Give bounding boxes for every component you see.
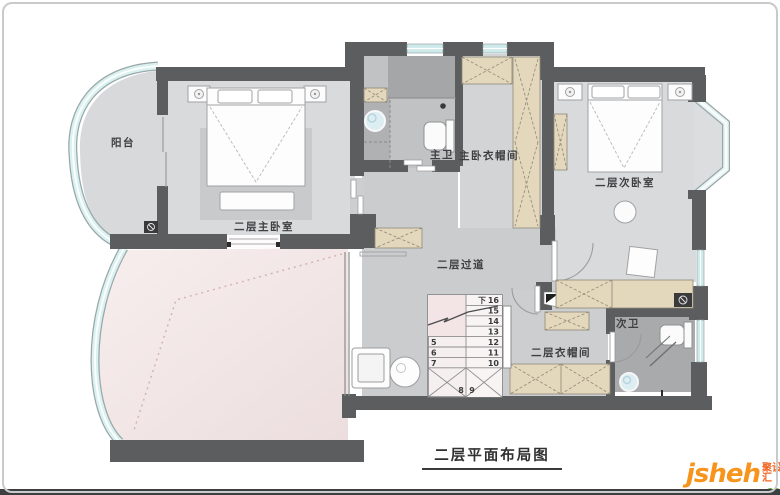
bedroom-table xyxy=(626,246,657,277)
upper-closet-small-cabinet xyxy=(545,312,589,330)
master-bath-cabinet xyxy=(364,88,387,102)
stair-step: 16 xyxy=(488,296,500,305)
floor-plan-page: 下 16 15 14 13 12 11 10 5 6 7 8 9 阳台 二层主卧… xyxy=(0,0,780,495)
master-bath-label: 主卫 xyxy=(430,148,454,161)
master-closet-tall-wardrobe xyxy=(513,57,540,228)
balcony-label: 阳台 xyxy=(111,136,135,149)
stair-step: 12 xyxy=(488,338,499,347)
floor-drain xyxy=(440,103,446,109)
stair-handrail xyxy=(503,306,511,368)
stair-step: 6 xyxy=(431,349,437,358)
stair-step: 9 xyxy=(469,386,475,395)
upper-closet-label: 二层衣帽间 xyxy=(531,346,591,359)
second-bath-label: 次卫 xyxy=(616,317,640,330)
stair-step: 11 xyxy=(488,349,500,358)
balcony-drain-box xyxy=(144,221,158,233)
second-bedroom-label: 二层次卧室 xyxy=(595,176,655,189)
second-bedroom-wardrobe xyxy=(556,280,693,308)
stair-step: 15 xyxy=(488,307,500,316)
upper-closet-bottom-wardrobe xyxy=(510,364,610,394)
staircase: 下 16 15 14 13 12 11 10 5 6 7 8 9 xyxy=(428,295,511,397)
stair-step: 10 xyxy=(488,359,500,368)
master-closet-top-wardrobe xyxy=(462,57,512,84)
toilet-icon xyxy=(424,120,454,152)
stair-step: 8 xyxy=(458,386,464,395)
corridor-label: 二层过道 xyxy=(437,258,485,271)
master-bedroom-furniture xyxy=(188,86,326,220)
toilet-icon-2 xyxy=(660,322,692,348)
bottom-bar xyxy=(0,489,780,495)
stair-down-label: 下 xyxy=(478,296,486,305)
stair-step: 14 xyxy=(488,317,500,326)
stair-step: 7 xyxy=(431,359,437,368)
master-bedroom-label: 二层主卧室 xyxy=(234,220,294,233)
plan-caption: 二层平面布局图 xyxy=(422,444,562,470)
ceiling-lamp-icon xyxy=(614,201,636,223)
brand-logo-badge: 聚设汇 xyxy=(762,464,780,484)
floor-plan: 下 16 15 14 13 12 11 10 5 6 7 8 9 阳台 二层主卧… xyxy=(0,0,780,495)
stair-step: 5 xyxy=(431,338,437,347)
bedroom-drain-box xyxy=(674,293,692,307)
stair-step: 13 xyxy=(488,328,499,337)
second-bedroom-side-cabinet xyxy=(554,114,567,170)
brand-logo-text: jsheh xyxy=(686,461,760,487)
master-closet-label: 主卧衣帽间 xyxy=(459,149,519,162)
